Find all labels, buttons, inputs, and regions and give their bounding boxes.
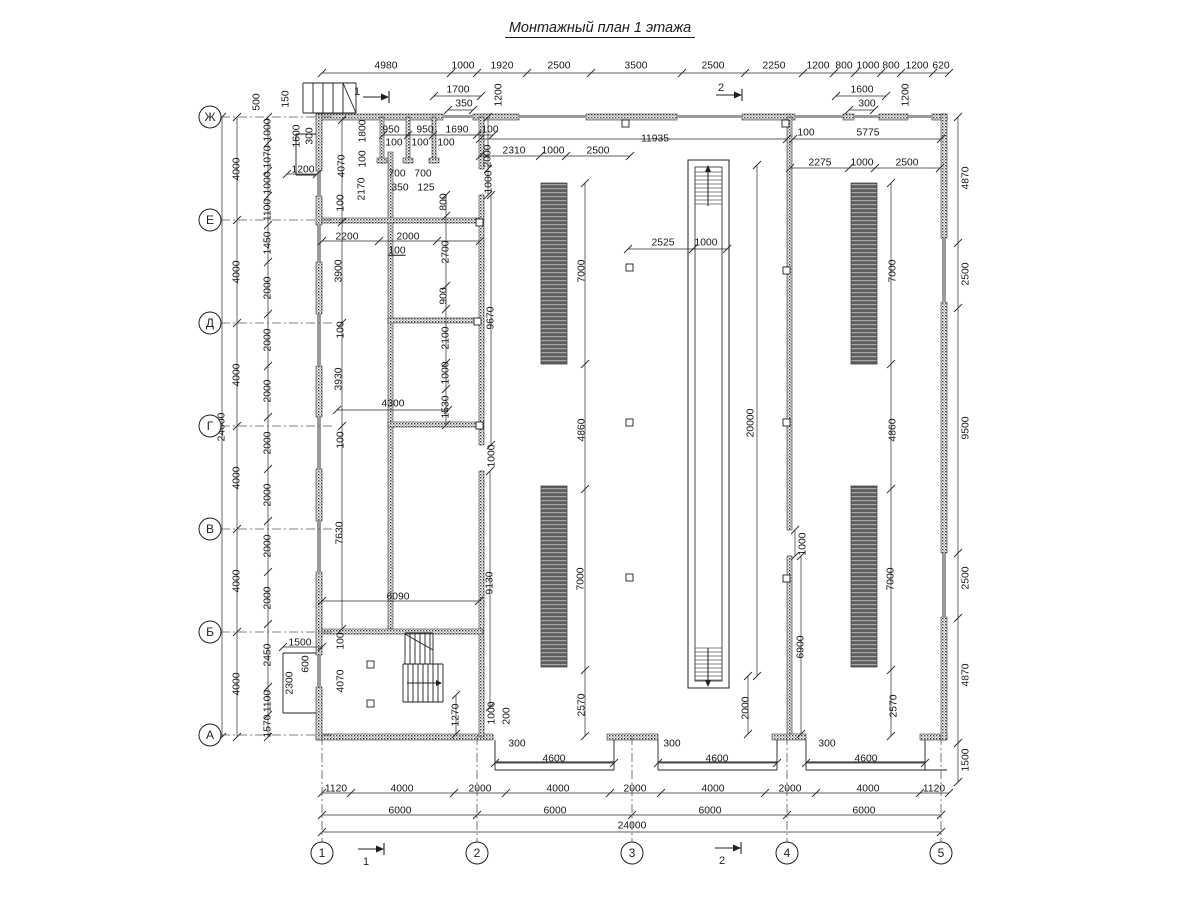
dimension-label: 6000 (544, 806, 567, 817)
wall-hatched (316, 366, 322, 417)
dimension-label: 2500 (896, 158, 919, 169)
dimension-label: 800 (439, 193, 450, 210)
dimension-label: 200 (502, 707, 513, 724)
dimension-label: 5775 (857, 128, 880, 139)
axis-row-label: А (206, 728, 214, 742)
axis-row-label: Ж (204, 110, 215, 124)
detail-line (405, 634, 433, 650)
wall-window-segment (942, 238, 946, 302)
column-marker (367, 700, 374, 707)
dimension-label: 100 (358, 150, 369, 167)
column-marker (622, 120, 629, 127)
column-marker (626, 419, 633, 426)
wall-hatched (316, 734, 493, 740)
dimension-label: 3500 (625, 61, 648, 72)
wall-hatched (941, 302, 947, 553)
dimension-label: 800 (835, 61, 852, 72)
dimension-label: 1500 (961, 748, 972, 771)
dimension-label: 2000 (263, 534, 274, 557)
dimension-label: 150 (281, 90, 292, 107)
dimension-label: 100 (797, 128, 814, 139)
dimension-label: 2500 (702, 61, 725, 72)
wall-window-segment (854, 115, 879, 118)
dimension-label: 1000 (798, 532, 809, 555)
dimension-label: 1100 (263, 690, 274, 712)
dimension-label: 20000 (746, 408, 757, 437)
wall-hatched (843, 114, 854, 120)
axis-col-label: 2 (474, 846, 481, 860)
dimension-label: 1000 (487, 701, 498, 724)
wall-hatched (377, 158, 387, 163)
wall-hatched (787, 556, 792, 734)
wall-hatched (941, 114, 947, 238)
wall-hatched (316, 262, 322, 314)
dimension-label: 2700 (441, 240, 452, 263)
dimension-label: 7630 (335, 521, 346, 544)
wall-window-segment (795, 115, 843, 118)
dimension-label: 2000 (263, 431, 274, 454)
dimension-label: 1120 (325, 784, 347, 795)
dimension-label: 3930 (334, 367, 345, 390)
dimension-label: 300 (663, 739, 680, 750)
dimension-label: 4070 (336, 669, 347, 692)
dimension-label: 6900 (796, 635, 807, 658)
dimension-label: 4980 (375, 61, 398, 72)
dimension-label: 2500 (587, 146, 610, 157)
dimension-lines-layer (218, 69, 962, 836)
dimension-label: 2500 (961, 566, 972, 589)
floor-plan-svg: 4980100019202500350025002250120080010008… (0, 0, 1200, 900)
column-marker (783, 575, 790, 582)
dimension-label: 2000 (624, 784, 647, 795)
dimension-label: 2000 (483, 144, 494, 167)
dimension-label: 7000 (577, 259, 588, 282)
axis-row-label: Е (206, 213, 214, 227)
dimension-label: 1920 (491, 61, 514, 72)
dimension-label: 700 (388, 169, 405, 180)
equipment-rack (541, 183, 567, 364)
dimension-label: 6000 (389, 806, 412, 817)
dimension-label: 300 (508, 739, 525, 750)
wall-hatched (607, 734, 658, 740)
dimension-label: 100 (336, 431, 347, 448)
wall-hatched (941, 617, 947, 740)
wall-hatched (388, 152, 393, 629)
axis-row-label: Г (207, 419, 214, 433)
dimension-label: 1270 (451, 703, 462, 726)
axis-row-label: Д (206, 316, 214, 330)
dimension-label: 4860 (888, 418, 899, 441)
dimension-label: 100 (411, 138, 428, 149)
section-mark-arrowhead (733, 845, 741, 852)
dimension-label: 2000 (263, 483, 274, 506)
wall-hatched (429, 158, 439, 163)
dimension-label: 9670 (486, 306, 497, 329)
axis-col-label: 3 (629, 846, 636, 860)
column-marker (783, 419, 790, 426)
dimension-label: 1200 (292, 165, 315, 176)
dimension-label: 1600 (851, 85, 874, 96)
dimension-label: 2525 (652, 238, 675, 249)
axis-col-label: 5 (938, 846, 945, 860)
dimension-label: 620 (932, 61, 949, 72)
dimension-label: 1530 (441, 395, 452, 418)
dimension-label: 4000 (547, 784, 570, 795)
dimension-label: 2000 (741, 696, 752, 719)
dimension-label: 100 (388, 246, 405, 257)
dimension-label: 1690 (446, 125, 469, 136)
dimension-label: 11935 (641, 134, 669, 145)
wall-hatched (586, 114, 677, 120)
wall-hatched (403, 158, 413, 163)
dimension-label: 4070 (337, 154, 348, 177)
column-marker (367, 661, 374, 668)
dimension-label: 4870 (961, 166, 972, 189)
dimension-label: 2500 (961, 262, 972, 285)
wall-hatched (479, 471, 484, 737)
wall-hatched (316, 572, 322, 655)
axis-row-label: В (206, 522, 214, 536)
dimension-label: 100 (336, 194, 347, 211)
dimension-label: 2000 (779, 784, 802, 795)
dimension-label: 4000 (232, 157, 243, 180)
dimension-label: 1000 (542, 146, 565, 157)
dimension-label: 1070 (263, 145, 274, 168)
dimension-label: 2500 (548, 61, 571, 72)
axis-col-label: 1 (319, 846, 326, 860)
dimension-label: 1500 (289, 638, 312, 649)
dimension-label: 1000 (263, 171, 274, 194)
dimension-label: 2450 (263, 643, 274, 666)
axis-grid-layer: ЖЕДГВБА12345 (199, 106, 952, 864)
dimension-label: 1800 (358, 119, 369, 142)
wall-hatched (388, 422, 480, 427)
wall-window-segment (443, 115, 473, 118)
column-marker (476, 422, 483, 429)
dimension-label: 1100 (263, 199, 274, 221)
wall-hatched (406, 117, 410, 163)
stair-arrowhead (436, 680, 442, 686)
equipment-rack (851, 183, 877, 364)
section-mark-label: 2 (719, 855, 725, 867)
dimension-label: 4000 (232, 466, 243, 489)
equipment-rack (541, 486, 567, 667)
wall-hatched (316, 114, 443, 120)
dimension-label: 4000 (232, 569, 243, 592)
dimension-label: 350 (391, 183, 408, 194)
section-mark-arrowhead (376, 846, 384, 853)
wall-hatched (772, 734, 806, 740)
dimension-label: 1000 (695, 238, 718, 249)
dimension-label: 1200 (807, 61, 830, 72)
dimension-label: 2250 (763, 61, 786, 72)
dimension-label: 100 (437, 138, 454, 149)
dimension-label: 300 (858, 99, 875, 110)
dimension-label: 2170 (357, 177, 368, 200)
dimension-label: 2000 (263, 379, 274, 402)
column-marker (626, 264, 633, 271)
dimension-label: 1000 (441, 361, 452, 384)
dimension-label: 4000 (391, 784, 414, 795)
dimension-label: 1120 (923, 784, 945, 795)
dimension-label: 100 (385, 138, 402, 149)
dimension-label: 4000 (232, 260, 243, 283)
wall-window-segment (317, 171, 321, 196)
dimension-label: 6000 (699, 806, 722, 817)
section-mark-arrowhead (381, 94, 389, 101)
detail-lines-layer (283, 83, 947, 770)
dimension-label: 2000 (397, 232, 420, 243)
dimension-label: 1000 (452, 61, 475, 72)
dimension-label: 6090 (387, 592, 410, 603)
wall-hatched (316, 469, 322, 521)
dimension-label: 2200 (336, 232, 359, 243)
dimension-label: 4600 (543, 754, 566, 765)
wall-hatched (316, 114, 322, 171)
column-marker (626, 574, 633, 581)
dimension-label: 1000 (487, 444, 498, 467)
racks-layer (541, 183, 877, 667)
dimension-label: 2570 (889, 694, 900, 717)
dimension-label: 1000 (851, 158, 874, 169)
dimension-label: 100 (481, 125, 498, 136)
dimension-label: 7000 (886, 567, 897, 590)
dimension-label: 300 (305, 127, 316, 144)
column-marker (476, 219, 483, 226)
dimension-label: 2310 (503, 146, 526, 157)
dimension-label: 900 (439, 287, 450, 304)
dimension-label: 1700 (447, 85, 470, 96)
section-mark-label: 1 (363, 856, 369, 868)
dimension-label: 125 (417, 183, 434, 194)
dimension-label: 1450 (263, 231, 274, 254)
dimension-label: 4860 (577, 418, 588, 441)
dimension-label: 700 (414, 169, 431, 180)
dimension-label: 800 (882, 61, 899, 72)
wall-window-segment (317, 417, 321, 469)
escalator-up-arrowhead (705, 165, 711, 172)
escalator-down-arrowhead (705, 680, 711, 687)
dimension-label: 1000 (263, 118, 274, 141)
wall-window-segment (317, 314, 321, 366)
section-mark-label: 2 (718, 82, 724, 94)
section-mark-label: 1 (354, 86, 360, 98)
dimension-label: 350 (455, 99, 472, 110)
dimension-labels-layer: 4980100019202500350025002250120080010008… (217, 61, 972, 832)
dimension-label: 9500 (961, 416, 972, 439)
dimension-label: 1600 (292, 124, 303, 147)
dimension-label: 7000 (888, 259, 899, 282)
dimension-label: 4000 (702, 784, 725, 795)
dimension-label: 950 (416, 125, 433, 136)
dimension-label: 2570 (577, 693, 588, 716)
dimension-label: 300 (818, 739, 835, 750)
dimension-label: 2000 (263, 276, 274, 299)
wall-window-segment (519, 115, 586, 118)
dimension-label: 600 (301, 655, 312, 672)
equipment-rack (851, 486, 877, 667)
wall-window-segment (942, 553, 946, 617)
wall-window-segment (908, 115, 932, 118)
wall-hatched (879, 114, 908, 120)
column-marker (474, 318, 481, 325)
dimension-label: 4870 (961, 663, 972, 686)
axis-row-label: Б (206, 625, 214, 639)
dimension-label: 100 (336, 321, 347, 338)
wall-hatched (388, 318, 480, 323)
dimension-label: 3900 (334, 259, 345, 282)
dimension-label: 7000 (576, 567, 587, 590)
dimension-label: 4000 (857, 784, 880, 795)
dimension-label: 1200 (901, 83, 912, 106)
dimension-label: 4000 (232, 672, 243, 695)
column-marker (783, 267, 790, 274)
dimension-label: 1570 (263, 714, 274, 737)
dimension-label: 4600 (706, 754, 729, 765)
axis-col-label: 4 (784, 846, 791, 860)
dimension-label: 1200 (906, 61, 929, 72)
dimension-label: 2000 (263, 328, 274, 351)
dimension-label: 950 (382, 125, 399, 136)
dimension-label: 6000 (853, 806, 876, 817)
dimension-label: 2000 (469, 784, 492, 795)
dimension-label: 9130 (485, 571, 496, 594)
dimension-label: 2300 (285, 671, 296, 694)
section-mark-arrowhead (734, 92, 742, 99)
dimension-label: 2100 (441, 326, 452, 349)
column-marker (782, 120, 789, 127)
wall-window-segment (317, 655, 321, 687)
dimension-label: 4600 (855, 754, 878, 765)
wall-window-segment (677, 115, 742, 118)
wall-hatched (787, 117, 792, 530)
dimension-label: 100 (336, 632, 347, 649)
dimension-label: 4000 (232, 363, 243, 386)
dimension-label: 2275 (809, 158, 832, 169)
wall-hatched (316, 196, 322, 225)
dimension-label: 1000 (857, 61, 880, 72)
wall-hatched (316, 687, 322, 740)
dimension-label: 1000 (484, 170, 495, 193)
dimension-label: 2000 (263, 586, 274, 609)
dimension-label: 1200 (494, 83, 505, 106)
dimension-label: 500 (252, 93, 263, 110)
dimension-label: 4300 (382, 399, 405, 410)
